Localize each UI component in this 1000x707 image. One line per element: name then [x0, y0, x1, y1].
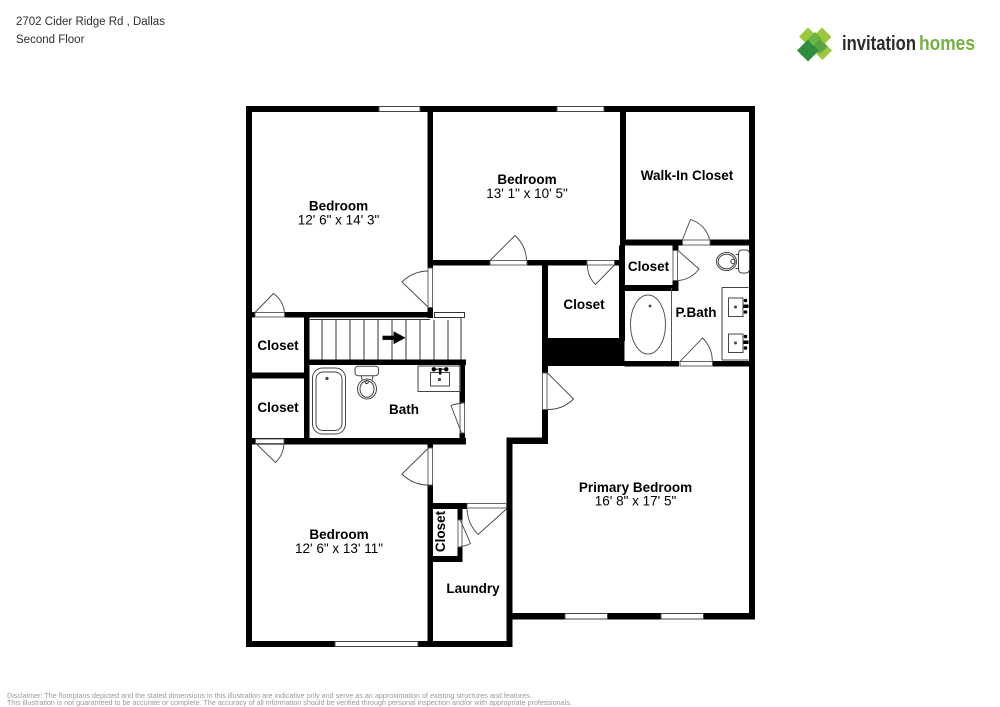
svg-text:Closet: Closet [563, 297, 605, 312]
svg-text:invitation: invitation [842, 33, 916, 55]
svg-text:Closet: Closet [257, 400, 299, 415]
svg-text:Bath: Bath [389, 402, 419, 417]
svg-text:Closet: Closet [433, 510, 448, 552]
svg-text:homes: homes [919, 33, 975, 55]
svg-text:Laundry: Laundry [446, 581, 500, 596]
svg-text:Walk-In Closet: Walk-In Closet [641, 168, 734, 183]
svg-text:12' 6" x 13' 11": 12' 6" x 13' 11" [295, 541, 383, 556]
svg-text:Bedroom: Bedroom [497, 172, 556, 187]
svg-text:Closet: Closet [628, 259, 670, 274]
svg-text:16' 8" x 17' 5": 16' 8" x 17' 5" [595, 494, 677, 509]
svg-text:Closet: Closet [257, 338, 299, 353]
svg-text:Bedroom: Bedroom [309, 527, 368, 542]
svg-text:Bedroom: Bedroom [309, 199, 368, 214]
svg-text:12' 6" x 14' 3": 12' 6" x 14' 3" [298, 213, 380, 228]
svg-text:P.Bath: P.Bath [675, 305, 716, 320]
svg-text:13' 1" x 10' 5": 13' 1" x 10' 5" [486, 186, 568, 201]
